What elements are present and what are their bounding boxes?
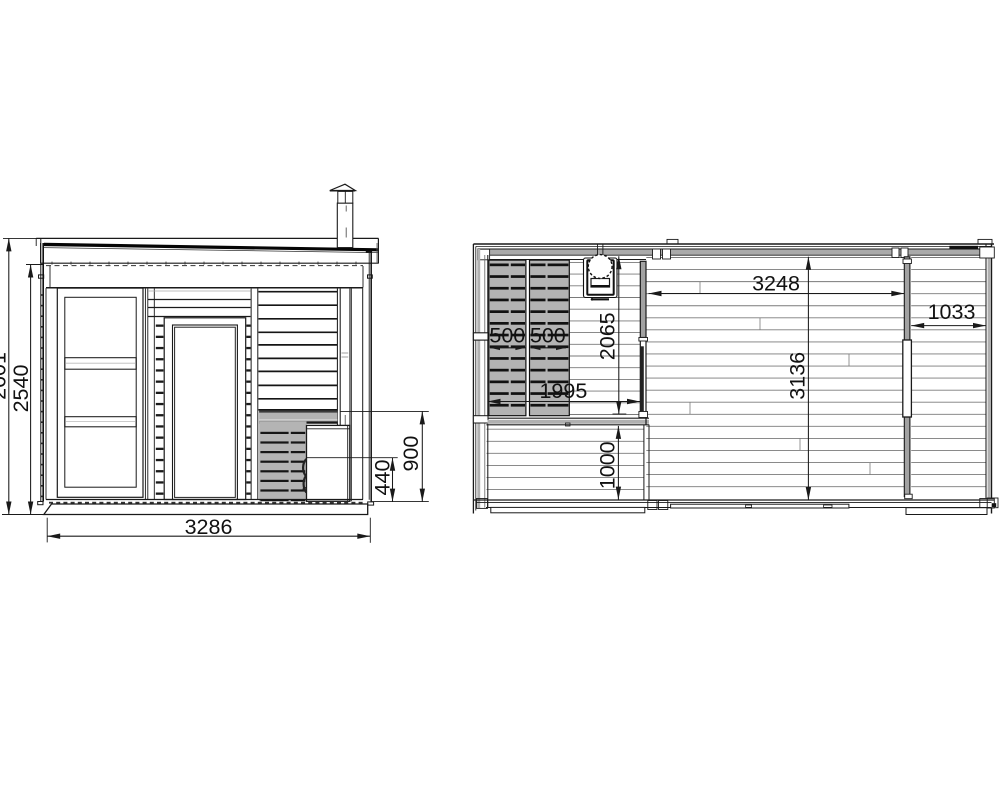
svg-text:2065: 2065 [596,312,620,360]
svg-text:3248: 3248 [752,271,800,295]
svg-text:1000: 1000 [595,441,619,489]
svg-text:3286: 3286 [185,515,233,539]
svg-text:500: 500 [489,324,525,348]
svg-text:3136: 3136 [786,352,810,400]
svg-text:440: 440 [370,460,394,496]
svg-text:2540: 2540 [9,365,33,413]
svg-text:1995: 1995 [539,379,587,403]
svg-text:900: 900 [399,436,423,472]
svg-text:1033: 1033 [928,300,976,324]
svg-text:500: 500 [530,324,566,348]
